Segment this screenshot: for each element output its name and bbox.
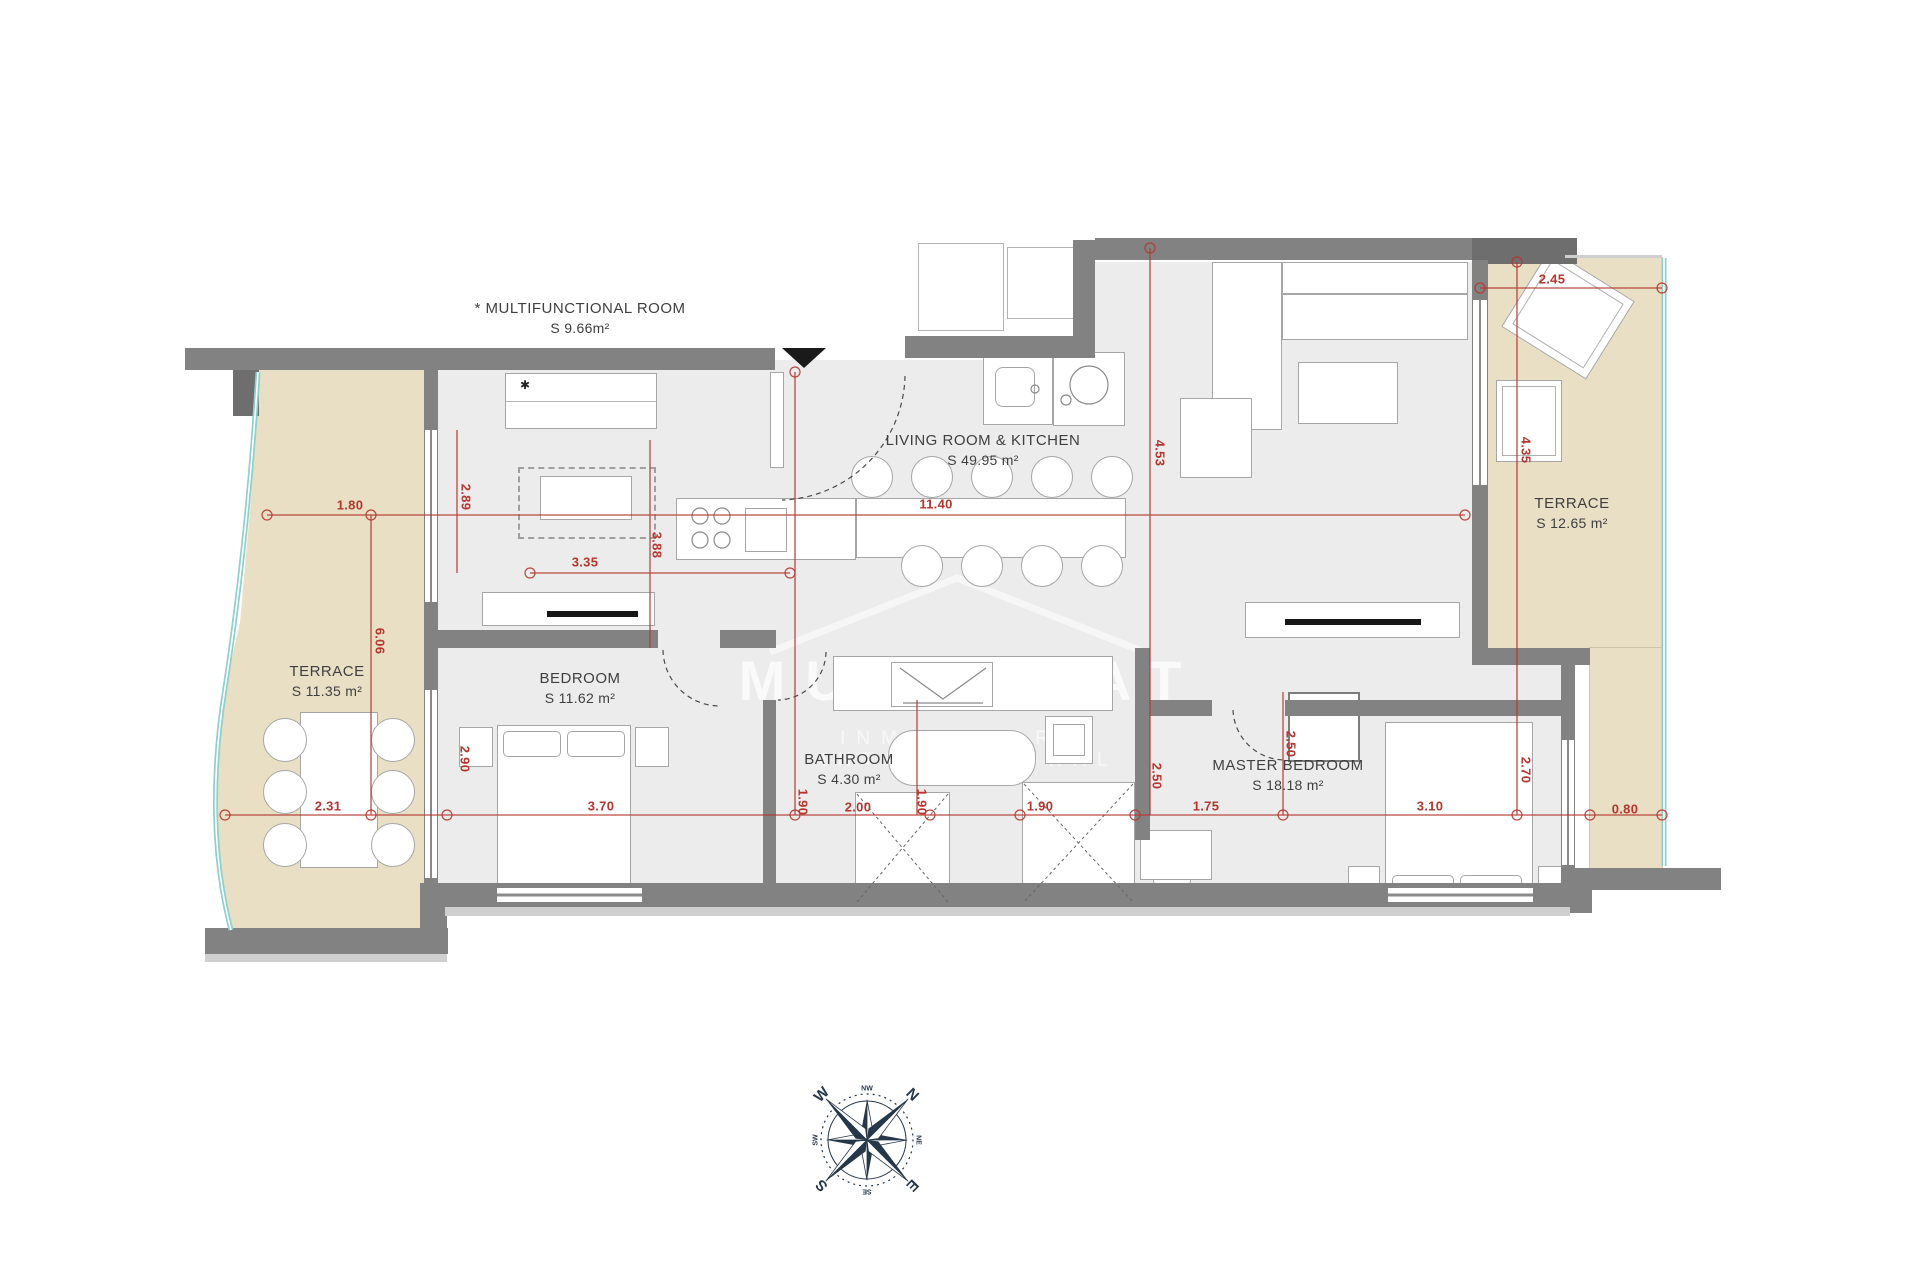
side-table — [1180, 398, 1252, 478]
wall-master-entry-left — [1150, 700, 1212, 716]
room-label-living: LIVING ROOM & KITCHEN S 49.95 m² — [886, 432, 1081, 468]
room-name: MASTER BEDROOM — [1212, 757, 1363, 774]
dim-label: 3.88 — [650, 532, 665, 559]
kitchen-appliance-unit — [1053, 352, 1125, 426]
window-living — [1473, 300, 1487, 485]
compass-ne: NE — [914, 1135, 921, 1145]
sofa-back — [1282, 262, 1468, 294]
room-area: S 12.65 m² — [1534, 515, 1609, 531]
wall-top-right — [1095, 238, 1472, 260]
sofa-seat — [1282, 294, 1468, 340]
room-name: LIVING ROOM & KITCHEN — [886, 432, 1081, 449]
dim-label: 4.35 — [1519, 437, 1534, 464]
asterisk-marker: ✱ — [520, 378, 530, 392]
terrace-chair — [263, 823, 307, 867]
compass-se: SE — [862, 1187, 872, 1194]
sink-basin — [995, 367, 1035, 407]
entrance-door-leaf — [770, 372, 784, 468]
dim-label: 2.00 — [845, 800, 872, 815]
lounge-coffee-table — [1298, 362, 1398, 424]
dim-label: 6.06 — [373, 628, 388, 655]
dim-label: 2.50 — [1150, 763, 1165, 790]
wall-top-left — [185, 348, 775, 370]
bathtub — [888, 730, 1036, 786]
dining-chair — [961, 545, 1003, 587]
dim-label: 3.10 — [1417, 799, 1444, 814]
dim-label: 1.90 — [1027, 799, 1054, 814]
room-name: TERRACE — [289, 663, 364, 680]
room-area: S 11.62 m² — [539, 690, 620, 706]
washbasin-bowl — [1053, 724, 1085, 756]
compass-s: S — [812, 1176, 831, 1195]
dining-chair — [1021, 545, 1063, 587]
room-name: BATHROOM — [804, 751, 894, 768]
tv-sideboard-handle — [1285, 619, 1421, 625]
room-label-master: MASTER BEDROOM S 18.18 m² — [1212, 757, 1363, 793]
stairwell-block — [918, 243, 1004, 331]
washbasin — [891, 662, 993, 707]
room-name: BEDROOM — [539, 670, 620, 687]
dim-label: 3.35 — [572, 555, 599, 570]
room-area: S 11.35 m² — [289, 683, 364, 699]
terrace-chair — [263, 718, 307, 762]
dim-label: 2.45 — [1539, 272, 1566, 287]
dining-chair — [901, 545, 943, 587]
dim-label: 2.89 — [459, 484, 474, 511]
terrace-chair — [263, 770, 307, 814]
pillow — [567, 731, 625, 757]
dim-label: 1.90 — [796, 789, 811, 816]
terrace-chair — [371, 718, 415, 762]
kitchen-grill — [745, 508, 787, 552]
compass-rose-icon: N E S W NW NE SE SW — [782, 1055, 952, 1225]
dim-label: 1.80 — [337, 498, 364, 513]
dining-chair — [1091, 456, 1133, 498]
elevator-block — [1007, 247, 1081, 319]
terrace-right-lower — [1590, 648, 1662, 870]
window-bottom-bedroom — [497, 888, 642, 902]
dim-label: 4.53 — [1153, 440, 1168, 467]
wall-stub — [233, 370, 259, 416]
pillow — [503, 731, 561, 757]
wall-bottom-right — [1563, 868, 1721, 890]
terrace-chair — [371, 823, 415, 867]
wall-master-top — [1285, 700, 1566, 716]
room-area: S 4.30 m² — [804, 771, 894, 787]
dining-chair — [1081, 545, 1123, 587]
wall-bottom-terrace — [205, 928, 448, 954]
room-label-multifunctional: * MULTIFUNCTIONAL ROOM S 9.66m² — [474, 300, 685, 336]
compass-e: E — [903, 1176, 922, 1195]
wall-top-middle — [905, 336, 1095, 358]
wall-step-vertical — [1073, 240, 1095, 358]
dim-label: 2.90 — [458, 746, 473, 773]
room-label-bedroom: BEDROOM S 11.62 m² — [539, 670, 620, 706]
room-area: S 49.95 m² — [886, 452, 1081, 468]
dim-label: 0.80 — [1612, 802, 1639, 817]
room-label-terrace-right: TERRACE S 12.65 m² — [1534, 495, 1609, 531]
room-name: TERRACE — [1534, 495, 1609, 512]
wall-corridor — [763, 700, 776, 905]
compass-w: W — [811, 1083, 834, 1106]
room-label-terrace-left: TERRACE S 11.35 m² — [289, 663, 364, 699]
dim-label: 1.75 — [1193, 799, 1220, 814]
window-multifunctional — [425, 430, 437, 602]
coffee-table — [540, 476, 632, 520]
wall-bathroom-master — [1135, 648, 1150, 840]
compass-sw: SW — [813, 1134, 820, 1146]
window-bedroom — [425, 690, 437, 878]
window-master — [1562, 740, 1574, 865]
dim-label: 3.70 — [588, 799, 615, 814]
dim-label: 2.31 — [315, 799, 342, 814]
terrace-chair — [371, 770, 415, 814]
room-name: * MULTIFUNCTIONAL ROOM — [474, 300, 685, 317]
terrace-top-edge — [1565, 255, 1662, 258]
wall-footer-line-left — [205, 954, 447, 962]
wall-master-top-right — [1472, 648, 1590, 665]
master-dresser — [1140, 830, 1212, 880]
room-area: S 9.66m² — [474, 320, 685, 336]
room-label-bathroom: BATHROOM S 4.30 m² — [804, 751, 894, 787]
room-area: S 18.18 m² — [1212, 777, 1363, 793]
dim-label: 1.90 — [915, 789, 930, 816]
entrance-arrow-icon — [782, 348, 826, 368]
window-bottom-master — [1388, 888, 1533, 902]
wall-bedroom-top — [438, 630, 658, 648]
compass-n: N — [902, 1085, 922, 1105]
dim-label: 11.40 — [919, 497, 952, 512]
floor-plan-canvas: MUNESTAT INMOBILIARIA INTERNACIONAL ✱ — [0, 0, 1920, 1280]
nightstand — [635, 727, 669, 767]
sideboard-handle — [547, 611, 638, 617]
terrace-table-left — [300, 712, 378, 868]
wall-bedroom-top-stub — [720, 630, 776, 648]
dim-label: 2.50 — [1284, 731, 1299, 758]
sideboard — [482, 592, 655, 626]
wall-footer-line — [445, 907, 1570, 916]
sofa-seat — [505, 401, 657, 429]
compass-nw: NW — [861, 1086, 873, 1093]
dim-label: 2.70 — [1519, 757, 1534, 784]
